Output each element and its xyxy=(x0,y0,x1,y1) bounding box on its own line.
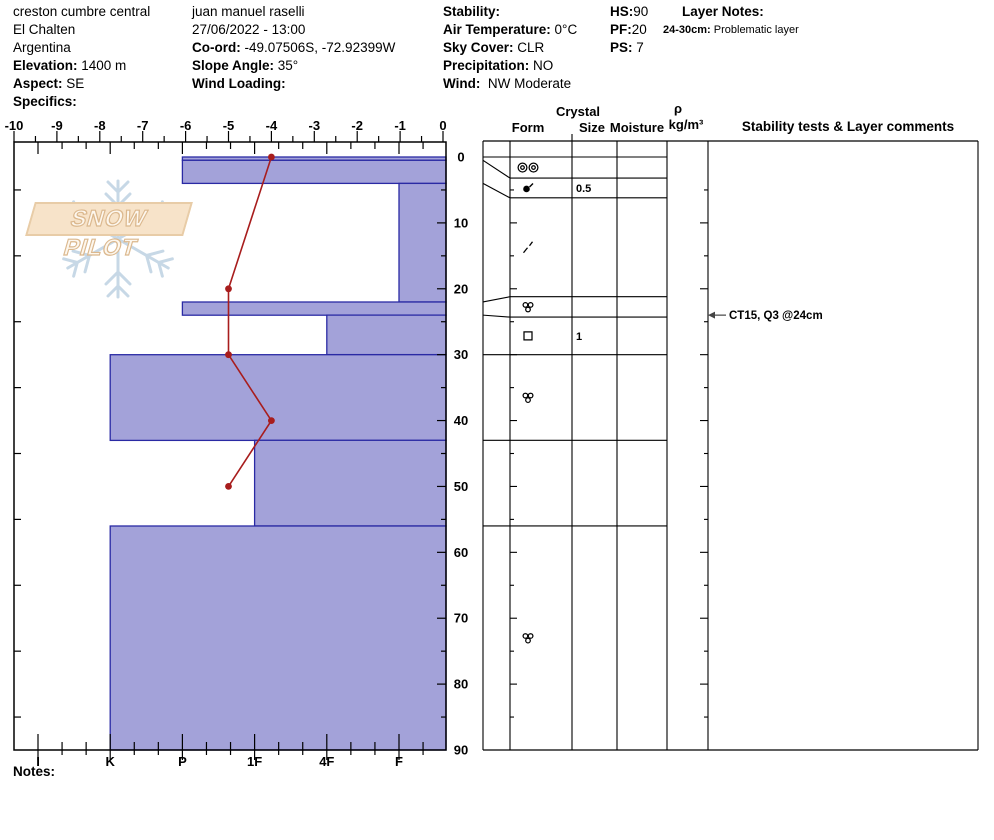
temperature-point xyxy=(225,351,232,358)
svg-text:0: 0 xyxy=(457,150,464,165)
temperature-point xyxy=(225,285,232,292)
crystal-size-value: 0.5 xyxy=(576,183,591,195)
crystal-form-symbol-three-circles xyxy=(523,393,533,402)
svg-text:-1: -1 xyxy=(394,118,406,133)
svg-text:-6: -6 xyxy=(180,118,192,133)
svg-text:80: 80 xyxy=(454,677,468,692)
svg-text:90: 90 xyxy=(454,743,468,758)
stability-test-result: CT15, Q3 @24cm xyxy=(729,310,823,322)
hardness-bar xyxy=(110,526,446,750)
hardness-bars xyxy=(110,157,446,750)
hardness-bar xyxy=(327,315,446,355)
svg-text:-7: -7 xyxy=(137,118,149,133)
stability-test-annotations: CT15, Q3 @24cm xyxy=(708,310,823,322)
temperature-point xyxy=(225,483,232,490)
hardness-bar xyxy=(110,355,446,441)
crystal-form-symbol-three-circles xyxy=(523,303,533,312)
hardness-bar xyxy=(255,440,446,526)
svg-text:50: 50 xyxy=(454,479,468,494)
test-depth-arrow-icon xyxy=(708,312,715,319)
svg-text:1F: 1F xyxy=(247,754,262,769)
crystal-form-symbol-three-circles xyxy=(523,634,533,643)
svg-text:40: 40 xyxy=(454,413,468,428)
snowpilot-profile-page: creston cumbre central El Chalten Argent… xyxy=(0,0,994,840)
svg-text:10: 10 xyxy=(454,215,468,230)
hardness-bar xyxy=(182,302,446,315)
svg-text:-9: -9 xyxy=(51,118,63,133)
temperature-point xyxy=(268,154,275,161)
layer-panel: 0.51 xyxy=(483,134,978,750)
svg-text:-10: -10 xyxy=(5,118,24,133)
svg-text:-8: -8 xyxy=(94,118,106,133)
svg-text:-4: -4 xyxy=(266,118,278,133)
crystal-form-symbol-slashes xyxy=(524,242,533,253)
crystal-form-symbol-dot-slash xyxy=(523,183,533,192)
crystal-size-value: 1 xyxy=(576,331,582,343)
svg-text:30: 30 xyxy=(454,347,468,362)
svg-text:-5: -5 xyxy=(223,118,235,133)
profile-chart-svg: -10-9-8-7-6-5-4-3-2-10IKP1F4FF0102030405… xyxy=(0,0,994,840)
svg-text:I: I xyxy=(36,754,40,769)
svg-text:K: K xyxy=(106,754,116,769)
svg-text:4F: 4F xyxy=(319,754,334,769)
svg-text:F: F xyxy=(395,754,403,769)
hardness-bar xyxy=(399,183,446,302)
svg-text:20: 20 xyxy=(454,281,468,296)
svg-text:70: 70 xyxy=(454,611,468,626)
svg-text:0: 0 xyxy=(439,118,446,133)
svg-text:60: 60 xyxy=(454,545,468,560)
crystal-form-symbol-square xyxy=(524,332,532,340)
hardness-bar xyxy=(182,160,446,183)
svg-text:P: P xyxy=(178,754,187,769)
crystal-form-symbol-double-circles xyxy=(518,163,538,172)
svg-text:-3: -3 xyxy=(309,118,321,133)
svg-text:-2: -2 xyxy=(351,118,363,133)
temperature-point xyxy=(268,417,275,424)
